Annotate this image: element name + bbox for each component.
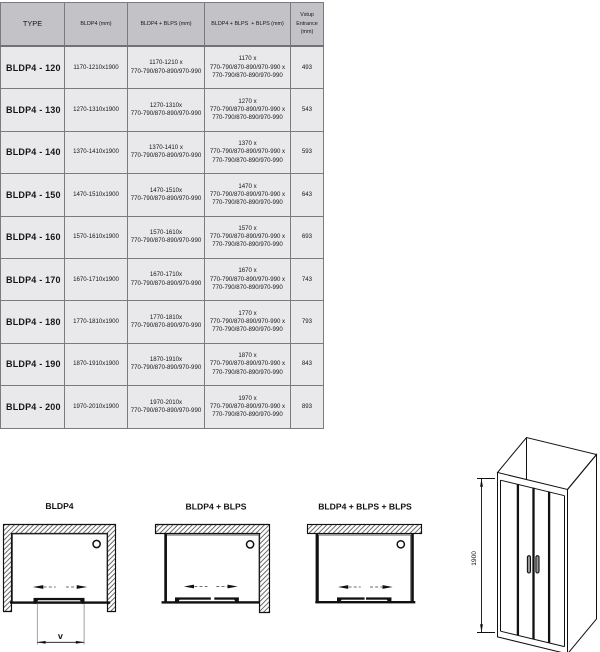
svg-text:BLDP4 + BLPS: BLDP4 + BLPS [186,502,247,512]
svg-text:BLDP4: BLDP4 [45,501,73,511]
svg-text:1900: 1900 [471,551,478,566]
svg-text:BLDP4 + BLPS + BLPS: BLDP4 + BLPS + BLPS [318,502,412,512]
svg-text:v: v [58,631,63,641]
